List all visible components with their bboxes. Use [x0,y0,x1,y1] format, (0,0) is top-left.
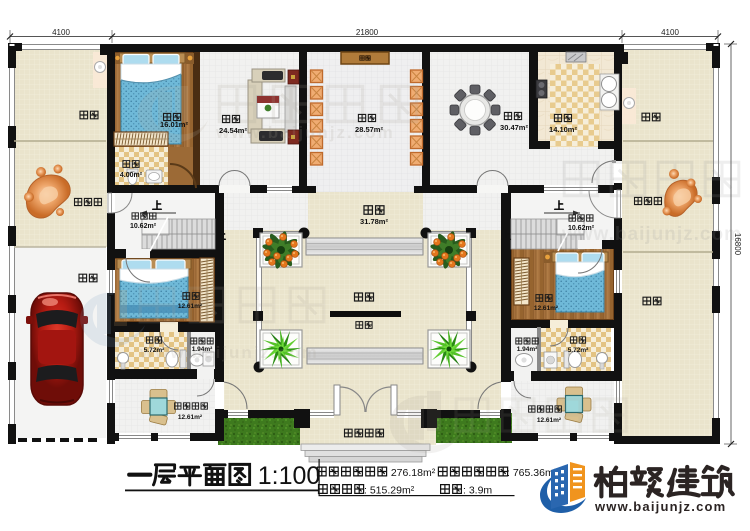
svg-text:30.47m²: 30.47m² [500,123,528,132]
svg-text:12.61m²: 12.61m² [178,303,203,310]
svg-text:1.94m²: 1.94m² [192,346,213,353]
svg-text:: 3.9m: : 3.9m [463,485,492,497]
svg-text:21800: 21800 [356,28,379,37]
svg-text:12.61m²: 12.61m² [178,414,203,421]
svg-text:12.61m²: 12.61m² [534,305,559,312]
svg-text:24.54m²: 24.54m² [219,126,247,135]
svg-text:1:100: 1:100 [258,462,321,490]
svg-text:5.72m²: 5.72m² [144,347,165,354]
svg-text:14.10m²: 14.10m² [549,125,577,134]
svg-text:4100: 4100 [52,28,70,37]
svg-text:28.57m²: 28.57m² [355,125,383,134]
svg-text:5.72m²: 5.72m² [568,347,589,354]
svg-text:31.78m²: 31.78m² [360,217,388,226]
svg-text:10.62m²: 10.62m² [130,223,157,230]
svg-text:4100: 4100 [661,28,679,37]
svg-text:www.baijunjz.com: www.baijunjz.com [594,499,726,514]
svg-text:1.94m²: 1.94m² [517,346,538,353]
svg-text:12.61m²: 12.61m² [537,417,562,424]
svg-text:16.01m²: 16.01m² [160,120,188,129]
svg-text:4.00m²: 4.00m² [120,172,143,179]
svg-text:16800: 16800 [733,233,742,256]
svg-text:: 276.18m²: : 276.18m² [385,467,436,479]
svg-text:: 515.29m²: : 515.29m² [364,485,415,497]
svg-text:: 765.36m²: : 765.36m² [507,467,558,479]
svg-text:10.62m²: 10.62m² [568,225,595,232]
svg-text:www.baijunjz.com: www.baijunjz.com [139,343,319,362]
